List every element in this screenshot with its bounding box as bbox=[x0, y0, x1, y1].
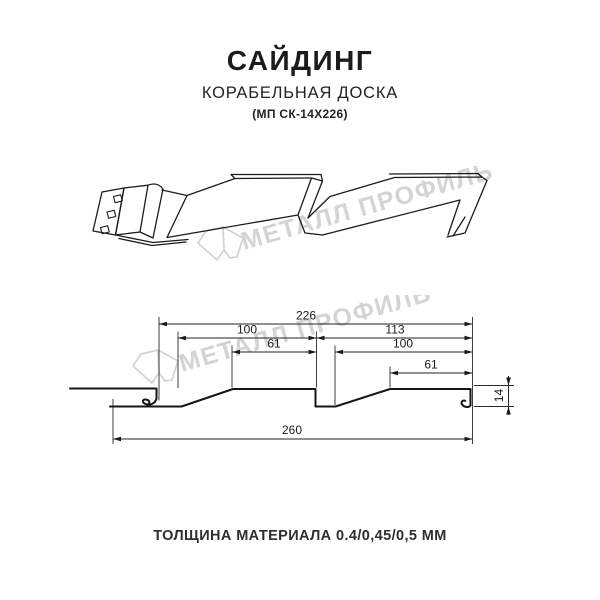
product-subtitle: КОРАБЕЛЬНАЯ ДОСКА bbox=[0, 84, 600, 103]
page-title: САЙДИНГ bbox=[0, 46, 600, 77]
dim-61-left-label: 61 bbox=[267, 337, 281, 351]
dim-226-label: 226 bbox=[296, 309, 316, 323]
profile-outline bbox=[70, 389, 471, 407]
title-block: САЙДИНГ КОРАБЕЛЬНАЯ ДОСКА (МП СК-14Х226) bbox=[0, 46, 600, 121]
thickness-note: ТОЛЩИНА МАТЕРИАЛА 0.4/0,45/0,5 ММ bbox=[0, 528, 600, 544]
dim-14-label: 14 bbox=[492, 389, 506, 403]
dim-100-right-label: 100 bbox=[393, 337, 413, 351]
cross-section-drawing: МЕТАЛЛ ПРОФИЛЬ 226 100 113 61 100 61 260… bbox=[50, 295, 530, 460]
metal-profil-logo-icon bbox=[133, 350, 178, 383]
perspective-drawing: МЕТАЛЛ ПРОФИЛЬ bbox=[80, 160, 510, 280]
product-drawing-page: САЙДИНГ КОРАБЕЛЬНАЯ ДОСКА (МП СК-14Х226)… bbox=[0, 0, 600, 600]
dim-260-label: 260 bbox=[282, 423, 302, 437]
metal-profil-logo-icon bbox=[198, 227, 243, 260]
product-model: (МП СК-14Х226) bbox=[0, 107, 600, 121]
dim-113-label: 113 bbox=[385, 323, 404, 337]
dim-61-right-label: 61 bbox=[424, 358, 438, 372]
dim-100-left-label: 100 bbox=[237, 323, 257, 337]
